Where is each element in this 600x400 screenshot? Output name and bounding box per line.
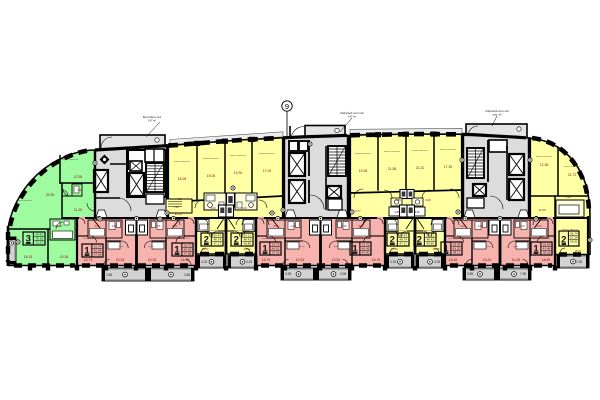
svg-text:4.05: 4.05 (434, 260, 440, 264)
svg-text:2.05: 2.05 (576, 260, 582, 264)
svg-text:3.85: 3.85 (467, 272, 473, 276)
svg-text:10.52: 10.52 (296, 258, 305, 262)
svg-text:5.03: 5.03 (173, 225, 178, 228)
svg-text:147 м²: 147 м² (148, 119, 156, 123)
svg-text:жилая комната: жилая комната (448, 238, 465, 240)
svg-text:жилая комната: жилая комната (174, 238, 191, 240)
svg-text:55.82: 55.82 (570, 239, 578, 243)
svg-text:10.52: 10.52 (332, 258, 341, 262)
svg-text:16.74: 16.74 (84, 258, 93, 262)
svg-text:жилая комната: жилая комната (83, 238, 100, 240)
svg-text:жилая комната: жилая комната (534, 238, 551, 240)
svg-text:4.25: 4.25 (291, 225, 296, 228)
svg-text:5.03: 5.03 (461, 225, 466, 228)
svg-text:5.03: 5.03 (359, 225, 364, 228)
svg-text:17.04: 17.04 (263, 169, 272, 173)
svg-text:71.67: 71.67 (36, 240, 44, 244)
svg-text:кухня: кухня (148, 246, 153, 248)
svg-text:47.17: 47.17 (400, 241, 408, 245)
svg-text:5.02: 5.02 (210, 206, 216, 210)
svg-text:жилая комната: жилая комната (16, 200, 33, 202)
svg-text:Лифтовой холл №2: Лифтовой холл №2 (340, 111, 364, 115)
svg-text:3.85: 3.85 (184, 273, 190, 277)
svg-text:4.35: 4.35 (390, 260, 396, 264)
svg-text:4.25: 4.25 (156, 225, 161, 228)
svg-text:3.90: 3.90 (414, 210, 420, 214)
svg-text:+4.92: +4.92 (174, 197, 182, 201)
svg-text:10.24: 10.24 (483, 258, 492, 262)
svg-text:47.17: 47.17 (214, 241, 222, 245)
svg-text:4.25: 4.25 (520, 225, 525, 228)
svg-text:жилая комната: жилая комната (384, 151, 401, 153)
svg-text:16.76: 16.76 (372, 258, 381, 262)
svg-text:кухня: кухня (333, 246, 338, 248)
svg-text:15.07: 15.07 (575, 249, 582, 253)
svg-text:жилая комната: жилая комната (259, 153, 276, 155)
svg-text:16.75: 16.75 (181, 258, 190, 262)
svg-text:кухня: кухня (485, 246, 490, 248)
svg-text:4.25: 4.25 (112, 225, 117, 228)
svg-text:19.26: 19.26 (207, 174, 216, 178)
svg-text:13.22: 13.22 (244, 247, 251, 251)
svg-text:21.10: 21.10 (416, 166, 425, 170)
svg-text:Лифтовой холл №3: Лифтовой холл №3 (485, 109, 509, 113)
svg-text:кухня: кухня (299, 246, 304, 248)
svg-text:2.57: 2.57 (77, 188, 83, 192)
svg-text:жилая комната: жилая комната (62, 159, 79, 161)
svg-text:18.69: 18.69 (542, 258, 551, 262)
svg-text:147 м²: 147 м² (348, 115, 356, 119)
svg-text:11.83: 11.83 (539, 208, 546, 212)
svg-text:9: 9 (285, 102, 289, 111)
svg-text:37.43: 37.43 (272, 250, 280, 254)
svg-text:5.03: 5.03 (537, 225, 542, 228)
svg-text:жилая комната: жилая комната (440, 149, 457, 151)
svg-text:жилая комната: жилая комната (564, 166, 581, 168)
svg-text:5.03: 5.03 (95, 225, 100, 228)
svg-text:4.23: 4.23 (246, 260, 252, 264)
svg-text:14.36: 14.36 (433, 247, 440, 251)
svg-text:3.95: 3.95 (340, 272, 346, 276)
svg-text:5.48: 5.48 (56, 224, 62, 228)
svg-text:кухня: кухня (513, 246, 518, 248)
svg-text:3.86: 3.86 (395, 198, 401, 202)
svg-text:38.11: 38.11 (453, 250, 461, 254)
svg-text:13.14: 13.14 (175, 212, 182, 216)
svg-text:4.25: 4.25 (342, 225, 347, 228)
svg-text:17.30: 17.30 (444, 165, 453, 169)
svg-text:9.77: 9.77 (355, 209, 361, 213)
svg-text:жилая комната: жилая комната (203, 158, 220, 160)
svg-text:3.95: 3.95 (285, 272, 291, 276)
svg-text:16.79: 16.79 (262, 258, 271, 262)
svg-text:38.35: 38.35 (543, 250, 551, 254)
svg-text:19.18: 19.18 (359, 169, 368, 173)
svg-text:7.85: 7.85 (173, 205, 179, 209)
svg-text:16.15: 16.15 (24, 255, 33, 259)
svg-text:10.25: 10.25 (512, 258, 521, 262)
svg-text:жилая комната: жилая комната (412, 150, 429, 152)
svg-text:37.40: 37.40 (362, 250, 370, 254)
svg-text:кухня: кухня (118, 246, 123, 248)
svg-text:5.03: 5.03 (274, 225, 279, 228)
svg-text:21.58: 21.58 (388, 167, 397, 171)
svg-text:12.35: 12.35 (540, 163, 549, 167)
svg-text:Вестибюль №1: Вестибюль №1 (143, 115, 162, 119)
svg-text:19.30: 19.30 (234, 171, 243, 175)
svg-text:7.95: 7.95 (520, 272, 526, 276)
svg-text:14.37: 14.37 (202, 247, 209, 251)
svg-text:18.45: 18.45 (449, 258, 458, 262)
svg-text:4.25: 4.25 (201, 260, 207, 264)
svg-text:46.86: 46.86 (427, 241, 435, 245)
svg-text:46.86: 46.86 (244, 241, 252, 245)
svg-text:14.35: 14.35 (391, 247, 398, 251)
svg-text:12.35: 12.35 (74, 175, 83, 179)
svg-text:33.30: 33.30 (46, 193, 55, 197)
svg-text:10.25: 10.25 (116, 258, 125, 262)
svg-text:10.26: 10.26 (60, 255, 69, 259)
svg-text:жилая комната: жилая комната (355, 153, 372, 155)
svg-text:жилая комната: жилая комната (230, 155, 247, 157)
svg-text:жилая комната: жилая комната (388, 230, 405, 232)
svg-text:жилая комната: жилая комната (562, 229, 579, 231)
svg-text:11.26: 11.26 (74, 208, 82, 212)
svg-text:18.28: 18.28 (178, 177, 187, 181)
svg-text:жилая комната: жилая комната (233, 230, 250, 232)
svg-text:5.56: 5.56 (565, 195, 571, 199)
svg-text:жилая комната: жилая комната (174, 161, 191, 163)
svg-text:37.86: 37.86 (184, 251, 192, 255)
svg-text:5.03: 5.03 (241, 206, 247, 210)
svg-text:жилая комната: жилая комната (536, 156, 553, 158)
svg-text:3.90: 3.90 (425, 198, 431, 202)
svg-text:3.85: 3.85 (106, 273, 112, 277)
svg-text:жилая комната: жилая комната (262, 238, 279, 240)
svg-text:21.72: 21.72 (568, 173, 577, 177)
svg-text:жилая комната: жилая комната (416, 230, 433, 232)
svg-text:жилая комната: жилая комната (354, 238, 371, 240)
svg-text:10.25: 10.25 (148, 258, 157, 262)
svg-text:жилая комната: жилая комната (203, 230, 220, 232)
svg-text:37.85: 37.85 (94, 252, 102, 256)
svg-text:4.25: 4.25 (478, 225, 483, 228)
